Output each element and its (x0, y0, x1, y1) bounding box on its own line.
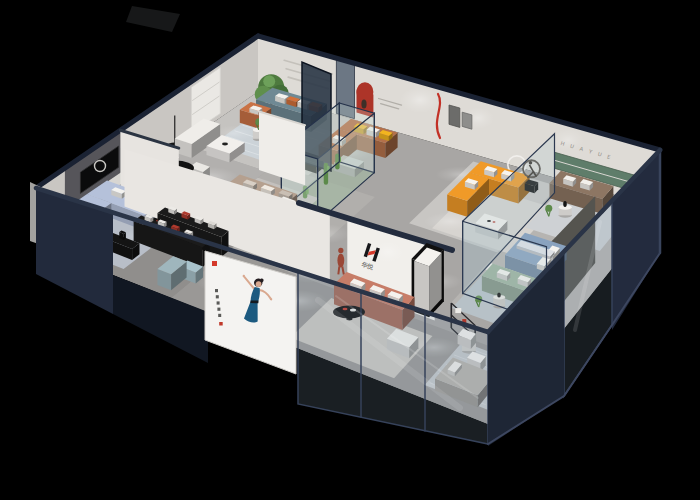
mannequin-sculpture (338, 266, 339, 274)
display-rack (455, 308, 461, 313)
niche-sculpture (361, 100, 366, 109)
mannequin-sculpture (338, 248, 343, 253)
showroom-render: H U A Y U E华悦 (0, 0, 700, 500)
wall-downlight (400, 87, 440, 113)
display-frame-inner (414, 261, 429, 312)
poster-caption-column (217, 301, 220, 304)
showroom-scene-canvas: H U A Y U E华悦 (0, 0, 700, 500)
poster-caption-column (218, 314, 221, 317)
potted-tree (263, 75, 275, 87)
wall-art-frame (462, 112, 472, 129)
poster-caption-column (216, 295, 219, 298)
table-decor (222, 143, 228, 146)
poster-caption-column (219, 322, 223, 326)
red-arch-niche (356, 82, 373, 102)
poster-caption-column (212, 261, 217, 266)
black-vase (563, 201, 567, 207)
poster-caption-column (217, 308, 220, 311)
potted-plant (545, 205, 552, 212)
poster-caption-column (215, 289, 218, 292)
wall-art-frame (449, 105, 460, 127)
mannequin-sculpture (337, 253, 344, 267)
